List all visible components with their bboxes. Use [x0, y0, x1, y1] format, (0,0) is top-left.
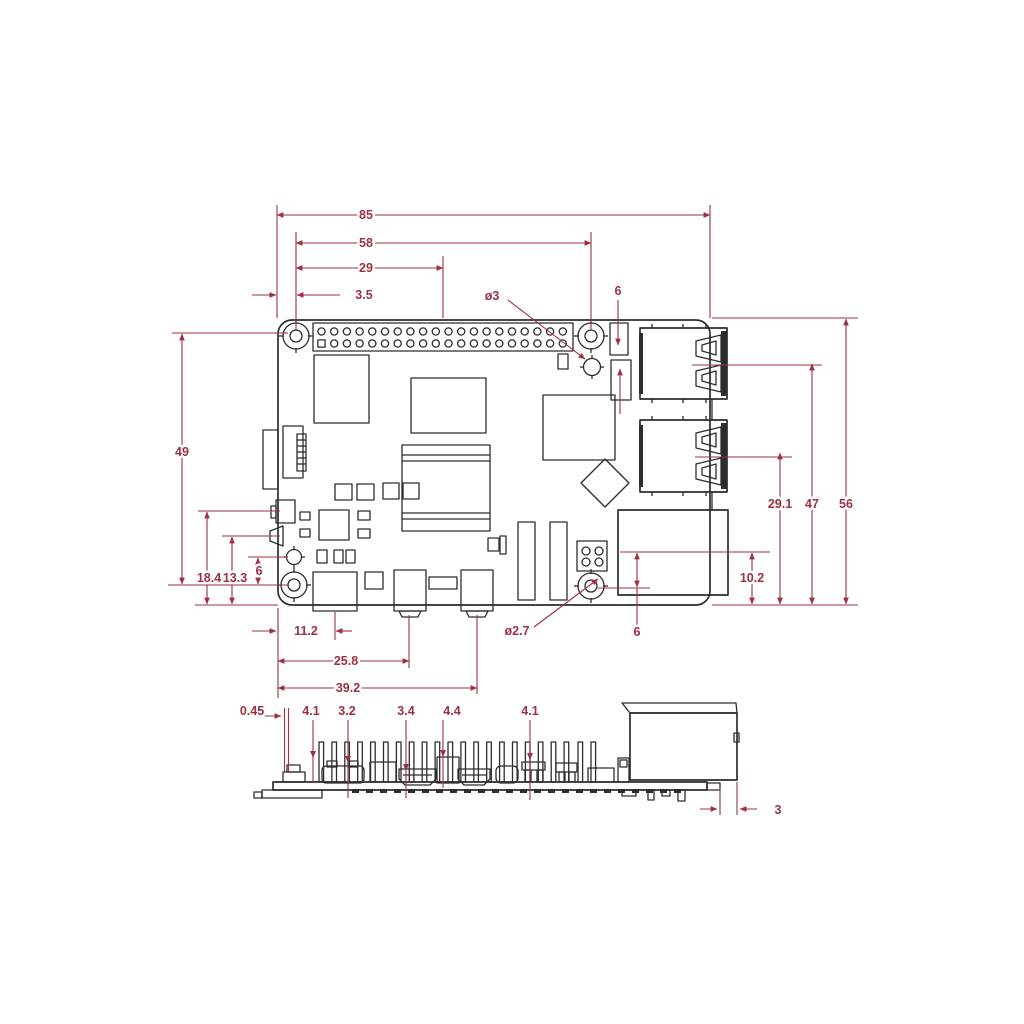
- dim-label-4-4: 4.4: [443, 704, 460, 718]
- dim-label-3-4: 3.4: [397, 704, 414, 718]
- board-top-view: [263, 319, 728, 617]
- dim-label-29: 29: [359, 261, 373, 275]
- dim-label-13-3: 13.3: [223, 571, 247, 585]
- usb-stack-2: [639, 416, 727, 496]
- side-dimension-lines: [264, 708, 757, 815]
- drawing-canvas: 85 58 29 3.5 ø3 6 49 18.4 13.3 6 29.1 47…: [0, 0, 1024, 1024]
- ribbon-connector: [550, 522, 567, 600]
- dimension-lines: 85 58 29 3.5 ø3 6 49 18.4 13.3 6 29.1 47…: [168, 205, 858, 698]
- dim-label-47: 47: [805, 497, 819, 511]
- small-component: [365, 572, 383, 589]
- dim-label-29-1: 29.1: [768, 497, 792, 511]
- chip-b: [411, 378, 486, 433]
- micro-hdmi-0: [394, 570, 426, 617]
- soc-chip: [402, 445, 490, 531]
- dim-label-0-45: 0.45: [240, 704, 264, 718]
- dim-label-3-5: 3.5: [355, 288, 372, 302]
- usb-stack-1: [639, 324, 727, 403]
- dim-label-6-left: 6: [256, 564, 263, 578]
- dim-label-85: 85: [359, 208, 373, 222]
- diamond-component: [581, 459, 629, 507]
- gpio-header: [313, 323, 573, 369]
- chip-d: [319, 510, 349, 540]
- dim-label-dia3: ø3: [485, 289, 500, 303]
- chip-c: [543, 395, 615, 460]
- mechanical-drawing: 85 58 29 3.5 ø3 6 49 18.4 13.3 6 29.1 47…: [0, 0, 1024, 1024]
- dim-label-58: 58: [359, 236, 373, 250]
- small-component: [610, 323, 628, 355]
- small-component: [429, 577, 457, 589]
- dim-label-11-2: 11.2: [294, 624, 318, 638]
- dim-label-49: 49: [175, 445, 189, 459]
- board-side-view: 0.45 4.1 3.2 3.4 4.4 4.1 3: [240, 703, 782, 817]
- sd-card-slot: [263, 430, 278, 489]
- dim-label-18-4: 18.4: [197, 571, 221, 585]
- poe-header: [577, 541, 607, 571]
- dim-label-25-8: 25.8: [334, 654, 358, 668]
- gpio-pins: [318, 328, 567, 347]
- camera-connector: [518, 522, 535, 600]
- ethernet-side: [622, 703, 739, 780]
- pcb-side-step: [707, 783, 720, 790]
- display-connector: [283, 426, 306, 478]
- mounting-hole-bottom-right: [574, 569, 608, 603]
- gpio-pins-side: [319, 742, 596, 782]
- dim-label-10-2: 10.2: [740, 571, 764, 585]
- dim-label-dia2-7: ø2.7: [504, 624, 529, 638]
- dim-label-39-2: 39.2: [336, 681, 360, 695]
- dim-label-3-2: 3.2: [338, 704, 355, 718]
- micro-hdmi-1: [461, 570, 493, 617]
- dim-label-4-1b: 4.1: [521, 704, 538, 718]
- chip-a: [314, 355, 369, 423]
- passive-components: [300, 483, 506, 563]
- small-component: [611, 360, 631, 400]
- small-component: [558, 354, 568, 369]
- dim-label-56: 56: [839, 497, 853, 511]
- dim-label-3: 3: [775, 803, 782, 817]
- dim-label-6-top: 6: [615, 284, 622, 298]
- dim-label-6-bottom: 6: [634, 625, 641, 639]
- dim-label-4-1a: 4.1: [302, 704, 319, 718]
